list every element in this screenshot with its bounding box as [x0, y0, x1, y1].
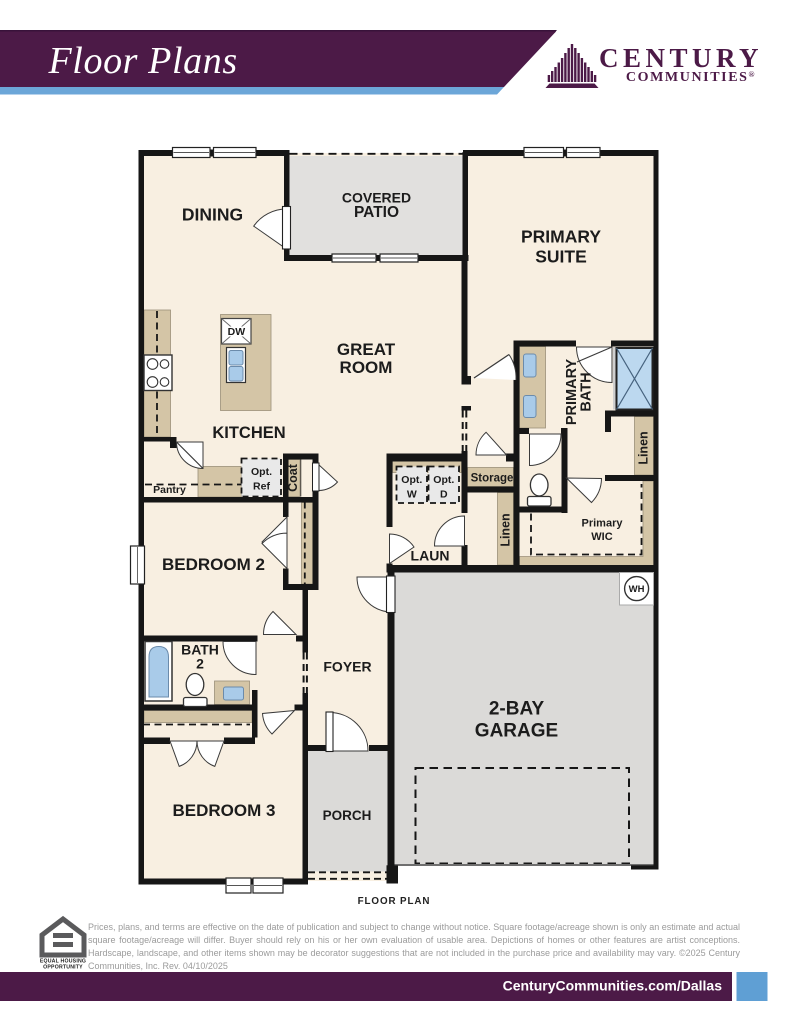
svg-text:SUITE: SUITE	[535, 247, 587, 267]
svg-text:WIC: WIC	[591, 531, 612, 543]
svg-text:DINING: DINING	[182, 205, 243, 225]
svg-text:Opt.: Opt.	[401, 474, 422, 486]
svg-text:Primary: Primary	[582, 518, 624, 530]
svg-text:BEDROOM 3: BEDROOM 3	[173, 801, 276, 820]
svg-text:COMMUNITIES®: COMMUNITIES®	[626, 70, 756, 85]
svg-text:2: 2	[196, 656, 204, 672]
svg-text:Floor Plans: Floor Plans	[48, 40, 238, 82]
svg-text:CenturyCommunities.com/Dallas: CenturyCommunities.com/Dallas	[503, 978, 723, 994]
svg-text:BEDROOM 2: BEDROOM 2	[162, 555, 265, 574]
svg-text:Linen: Linen	[637, 431, 651, 464]
svg-text:Opt.: Opt.	[251, 466, 272, 478]
svg-text:2-BAY: 2-BAY	[489, 699, 545, 720]
svg-text:Pantry: Pantry	[153, 484, 186, 496]
svg-text:W: W	[407, 489, 417, 501]
svg-text:LAUN: LAUN	[411, 548, 450, 564]
svg-text:ROOM: ROOM	[340, 358, 393, 377]
svg-text:FLOOR PLAN: FLOOR PLAN	[358, 896, 431, 907]
svg-text:GREAT: GREAT	[337, 340, 396, 359]
svg-text:PATIO: PATIO	[354, 204, 399, 221]
svg-text:PRIMARY: PRIMARY	[521, 227, 601, 247]
svg-text:Coat: Coat	[286, 463, 300, 492]
svg-text:Storage: Storage	[471, 473, 514, 485]
svg-text:OPPORTUNITY: OPPORTUNITY	[43, 965, 83, 971]
svg-text:FOYER: FOYER	[323, 659, 371, 675]
svg-text:KITCHEN: KITCHEN	[212, 424, 285, 442]
svg-text:GARAGE: GARAGE	[475, 721, 558, 742]
svg-text:Ref: Ref	[253, 481, 270, 493]
svg-text:Linen: Linen	[499, 513, 513, 546]
svg-text:CENTURY: CENTURY	[599, 43, 763, 73]
svg-text:BATH: BATH	[579, 372, 595, 411]
svg-text:DW: DW	[228, 326, 246, 338]
svg-text:Opt.: Opt.	[433, 474, 454, 486]
svg-text:D: D	[440, 489, 448, 501]
svg-text:PORCH: PORCH	[323, 808, 372, 823]
svg-text:WH: WH	[629, 584, 645, 595]
